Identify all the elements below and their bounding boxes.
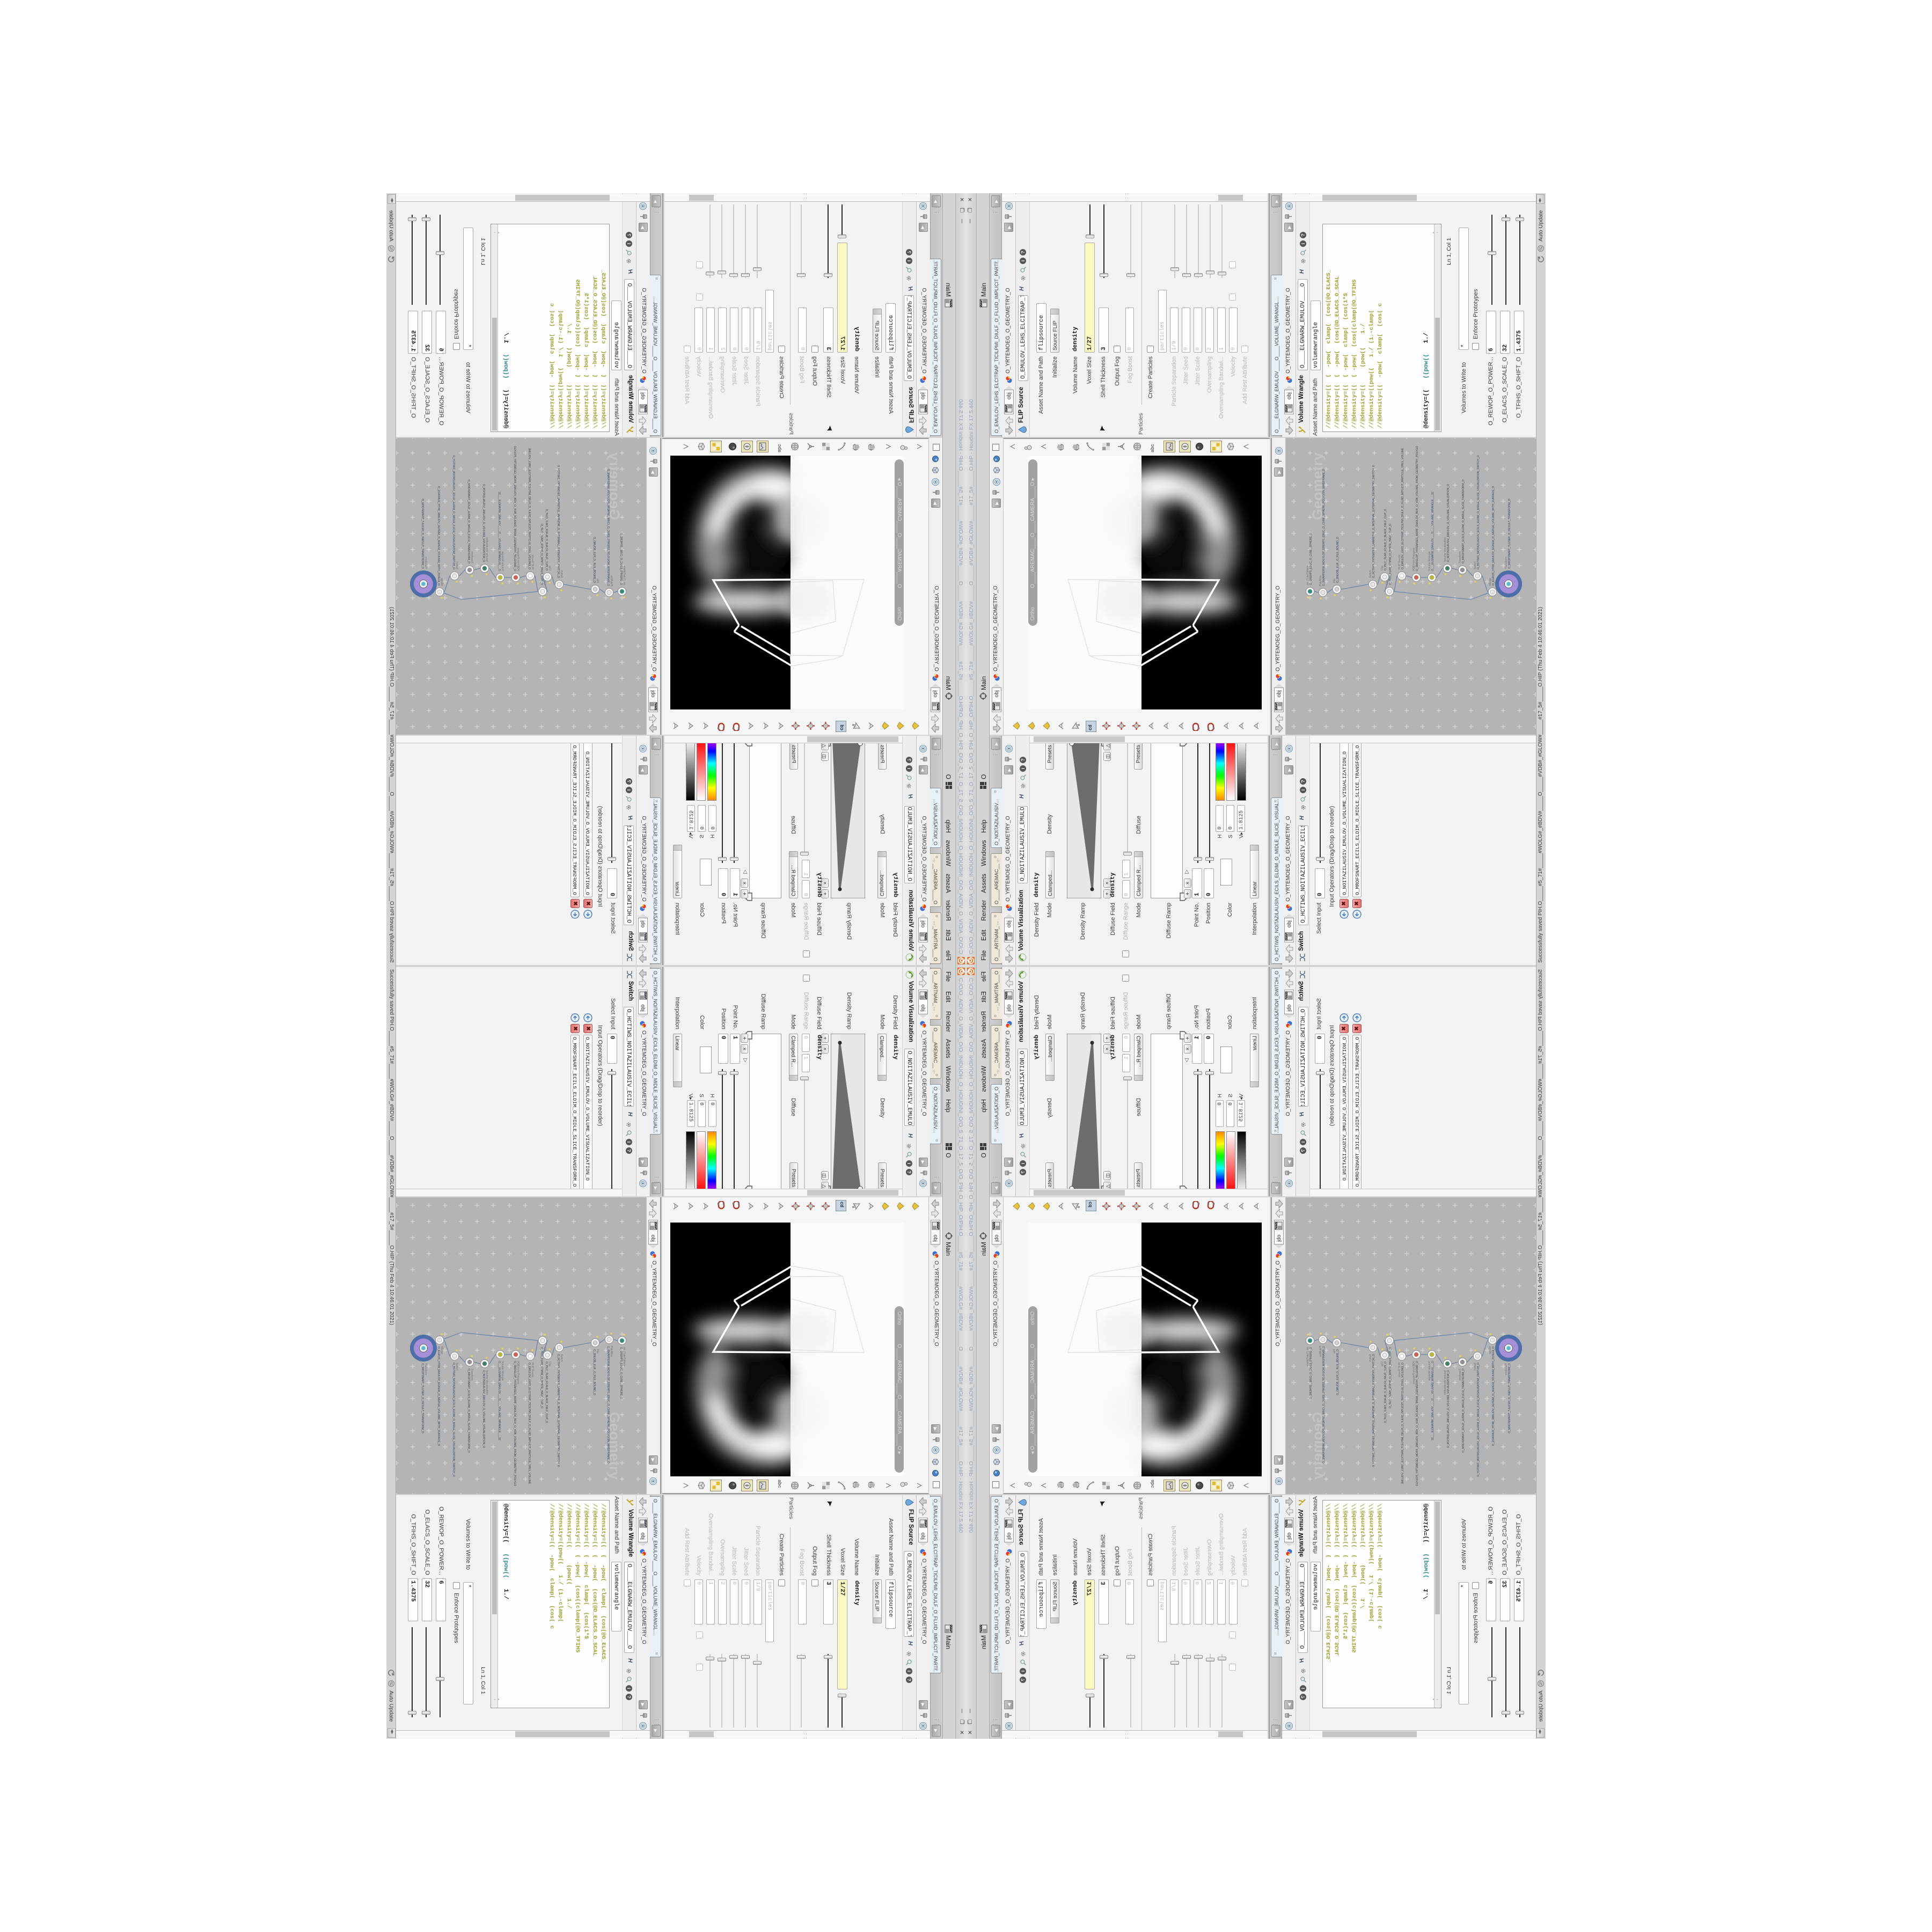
svg-text:Switch: Switch	[455, 1363, 458, 1371]
svg-text:O_EMARFERIW_NOGYLOP_EREHPS_EBU: O_EMARFERIW_NOGYLOP_EREHPS_EBUC_O_CUBE_S…	[606, 469, 610, 586]
svg-text:Merge: Merge	[440, 578, 443, 586]
svg-text:Transform: Transform	[470, 551, 473, 563]
svg-text:O_PILC_FLAH_KCALB_O_BLACK_HALF: O_PILC_FLAH_KCALB_O_BLACK_HALF_CLIP_O	[1384, 1362, 1387, 1423]
svg-text:O_EMULOV_LEHS_ELCITRAP_TICILPM: O_EMULOV_LEHS_ELCITRAP_TICILPMI_DIULF_O_…	[1401, 1363, 1404, 1484]
svg-text:Volume Wrangle: Volume Wrangle	[501, 551, 504, 571]
svg-text:O_DNUOB_ELIF_O_FILE_BOUND_O: O_DNUOB_ELIF_O_FILE_BOUND_O	[1336, 1349, 1340, 1395]
svg-text:VDB from Polygons: VDB from Polygons	[516, 547, 519, 571]
svg-text:PolyWire: PolyWire	[610, 575, 613, 586]
svg-text:O_HCTIWS_YRTEMOEG_LANRETXE_O_I: O_HCTIWS_YRTEMOEG_LANRETXE_O_INTERNAL_EX…	[557, 1354, 560, 1467]
svg-text:Transform: Transform	[424, 557, 427, 569]
svg-text:O_PILC_FLAH_ETIHW_O_WHITE_HALF: O_PILC_FLAH_ETIHW_O_WHITE_HALF_CLIP_O	[1389, 1347, 1392, 1408]
svg-text:Merge: Merge	[440, 1346, 443, 1354]
svg-text:O_EMULOV_LEHS_ELCITRAP_TICILPM: O_EMULOV_LEHS_ELCITRAP_TICILPMI_DIULF_O_…	[528, 448, 531, 569]
svg-text:O_HCTIWS_NOITAZILAUSIV_ECILS_E: O_HCTIWS_NOITAZILAUSIV_ECILS_ELDIM_O_MID…	[1477, 1363, 1480, 1477]
svg-text:O_MROFSNART_TLUSER_O_RESULT_TR: O_MROFSNART_TLUSER_O_RESULT_TRANSFORM_O	[421, 1363, 424, 1433]
svg-text:O_SNOGLOP_YRTEMOEG_MORF_EMULOV: O_SNOGLOP_YRTEMOEG_MORF_EMULOV_BDV_O_VDB…	[513, 1361, 516, 1486]
svg-text:an_CubeSphere: an_CubeSphere	[623, 565, 626, 585]
svg-text:Clip: Clip	[548, 566, 551, 570]
svg-text:O_NOITAZILAUSIV_EMULOV_O_VOLUM: O_NOITAZILAUSIV_EMULOV_O_VOLUME_VISUALIZ…	[482, 484, 485, 562]
svg-text:O_SNOGLOP_YRTEMOEG_MORF_EMULOV: O_SNOGLOP_YRTEMOEG_MORF_EMULOV_BDV_O_VDB…	[1416, 446, 1419, 571]
svg-text:O_EREHPS_EBUC_O_CUBE_SPHERE_O: O_EREHPS_EBUC_O_CUBE_SPHERE_O	[619, 1347, 623, 1399]
svg-text:Clip: Clip	[543, 580, 546, 585]
svg-text:FLIP Source: FLIP Source	[531, 554, 534, 569]
svg-text:O___ELGNARW_EMULOV___O____VOLU: O___ELGNARW_EMULOV___O____VOLUME_WRANGLE…	[497, 492, 501, 571]
svg-text:O_EMULOV_LEHS_ELCITRAP_TICILPM: O_EMULOV_LEHS_ELCITRAP_TICILPMI_DIULF_O_…	[528, 1363, 531, 1484]
svg-text:Clip: Clip	[548, 1362, 551, 1366]
svg-text:O_EGRUS_HTIW_EMULOV_EGREM_O_ME: O_EGRUS_HTIW_EMULOV_EGREM_O_MERGE_VOLUME…	[1492, 486, 1495, 586]
svg-text:O_DNUOB_ELIF_O_FILE_BOUND_O: O_DNUOB_ELIF_O_FILE_BOUND_O	[1336, 537, 1340, 583]
svg-text:O_HCTIWS_YRTEMOEG_LANRETXE_O_I: O_HCTIWS_YRTEMOEG_LANRETXE_O_INTERNAL_EX…	[557, 465, 560, 578]
svg-text:File: File	[596, 579, 599, 583]
svg-text:O_EREHPS_EBUC_O_CUBE_SPHERE_O: O_EREHPS_EBUC_O_CUBE_SPHERE_O	[619, 533, 623, 585]
svg-text:O_EGRUS_HTIW_EMULOV_EGREM_O_ME: O_EGRUS_HTIW_EMULOV_EGREM_O_MERGE_VOLUME…	[1492, 1346, 1495, 1446]
svg-text:O_EREHPS_EBUC_O_CUBE_SPHERE_O: O_EREHPS_EBUC_O_CUBE_SPHERE_O	[1309, 1347, 1313, 1399]
svg-text:O_EMULOV_LEHS_ELCITRAP_TICILPM: O_EMULOV_LEHS_ELCITRAP_TICILPMI_DIULF_O_…	[1401, 448, 1404, 569]
svg-text:O_HCTIWS_YRTEMOEG_LANRETXE_O_I: O_HCTIWS_YRTEMOEG_LANRETXE_O_INTERNAL_EX…	[1372, 1354, 1375, 1467]
svg-text:O_MROFSNART_ECILS_ELDIM_O_MIDL: O_MROFSNART_ECILS_ELDIM_O_MIDLE_SLICE_TR…	[1462, 1368, 1465, 1453]
svg-text:O_EREHPS_EBUC_O_CUBE_SPHERE_O: O_EREHPS_EBUC_O_CUBE_SPHERE_O	[1309, 533, 1313, 585]
svg-text:O_SNOGLOP_YRTEMOEG_MORF_EMULOV: O_SNOGLOP_YRTEMOEG_MORF_EMULOV_BDV_O_VDB…	[1416, 1361, 1419, 1486]
svg-text:Switch: Switch	[560, 570, 563, 578]
svg-text:Volume Visualization: Volume Visualization	[485, 1370, 488, 1395]
svg-text:O_MROFSNART_TLUSER_O_RESULT_TR: O_MROFSNART_TLUSER_O_RESULT_TRANSFORM_O	[1508, 499, 1511, 569]
svg-text:O_DNUOB_ELIF_O_FILE_BOUND_O: O_DNUOB_ELIF_O_FILE_BOUND_O	[592, 1349, 596, 1395]
svg-text:O___ELGNARW_EMULOV___O____VOLU: O___ELGNARW_EMULOV___O____VOLUME_WRANGLE…	[497, 1361, 501, 1440]
svg-text:File: File	[596, 1349, 599, 1353]
svg-text:FLIP Source: FLIP Source	[531, 1363, 534, 1378]
svg-text:O_NOITAZILAUSIV_EMULOV_O_VOLUM: O_NOITAZILAUSIV_EMULOV_O_VOLUME_VISUALIZ…	[1447, 1370, 1450, 1448]
svg-text:Transform: Transform	[470, 1368, 473, 1381]
svg-text:O_HCTIWS_NOITAZILAUSIV_ECILS_E: O_HCTIWS_NOITAZILAUSIV_ECILS_ELDIM_O_MID…	[452, 1363, 455, 1477]
svg-text:Switch: Switch	[560, 1354, 563, 1362]
svg-text:O_NOITAZILAUSIV_EMULOV_O_VOLUM: O_NOITAZILAUSIV_EMULOV_O_VOLUME_VISUALIZ…	[482, 1370, 485, 1448]
svg-text:O_PILC_FLAH_ETIHW_O_WHITE_HALF: O_PILC_FLAH_ETIHW_O_WHITE_HALF_CLIP_O	[1389, 524, 1392, 585]
svg-text:O_DNUOB_ELIF_O_FILE_BOUND_O: O_DNUOB_ELIF_O_FILE_BOUND_O	[592, 537, 596, 583]
svg-text:O_EMARFERIW_NOGYLOP_EREHPS_EBU: O_EMARFERIW_NOGYLOP_EREHPS_EBUC_O_CUBE_S…	[1322, 469, 1326, 586]
svg-text:O_MROFSNART_ECILS_ELDIM_O_MIDL: O_MROFSNART_ECILS_ELDIM_O_MIDLE_SLICE_TR…	[1462, 479, 1465, 563]
svg-text:O_PILC_FLAH_ETIHW_O_WHITE_HALF: O_PILC_FLAH_ETIHW_O_WHITE_HALF_CLIP_O	[540, 524, 543, 585]
svg-text:O_MROFSNART_ECILS_ELDIM_O_MIDL: O_MROFSNART_ECILS_ELDIM_O_MIDLE_SLICE_TR…	[467, 1368, 470, 1453]
svg-text:O_EGRUS_HTIW_EMULOV_EGREM_O_ME: O_EGRUS_HTIW_EMULOV_EGREM_O_MERGE_VOLUME…	[437, 1346, 440, 1446]
svg-text:O_NOITAZILAUSIV_EMULOV_O_VOLUM: O_NOITAZILAUSIV_EMULOV_O_VOLUME_VISUALIZ…	[1447, 484, 1450, 562]
svg-text:O_MROFSNART_ECILS_ELDIM_O_MIDL: O_MROFSNART_ECILS_ELDIM_O_MIDLE_SLICE_TR…	[467, 479, 470, 563]
svg-text:Transform: Transform	[424, 1363, 427, 1375]
svg-text:O_EMARFERIW_NOGYLOP_EREHPS_EBU: O_EMARFERIW_NOGYLOP_EREHPS_EBUC_O_CUBE_S…	[606, 1346, 610, 1463]
svg-text:O_PILC_FLAH_KCALB_O_BLACK_HALF: O_PILC_FLAH_KCALB_O_BLACK_HALF_CLIP_O	[1384, 509, 1387, 570]
svg-text:O___ELGNARW_EMULOV___O____VOLU: O___ELGNARW_EMULOV___O____VOLUME_WRANGLE…	[1431, 492, 1435, 571]
svg-text:O_PILC_FLAH_KCALB_O_BLACK_HALF: O_PILC_FLAH_KCALB_O_BLACK_HALF_CLIP_O	[545, 1362, 548, 1423]
svg-text:an_CubeSphere: an_CubeSphere	[623, 1347, 626, 1367]
svg-text:O_MROFSNART_TLUSER_O_RESULT_TR: O_MROFSNART_TLUSER_O_RESULT_TRANSFORM_O	[421, 499, 424, 569]
svg-text:Volume Visualization: Volume Visualization	[485, 537, 488, 562]
svg-text:O_HCTIWS_YRTEMOEG_LANRETXE_O_I: O_HCTIWS_YRTEMOEG_LANRETXE_O_INTERNAL_EX…	[1372, 465, 1375, 578]
svg-text:Switch: Switch	[455, 561, 458, 569]
svg-text:O_HCTIWS_NOITAZILAUSIV_ECILS_E: O_HCTIWS_NOITAZILAUSIV_ECILS_ELDIM_O_MID…	[452, 455, 455, 569]
svg-text:VDB from Polygons: VDB from Polygons	[516, 1361, 519, 1385]
svg-text:O_PILC_FLAH_KCALB_O_BLACK_HALF: O_PILC_FLAH_KCALB_O_BLACK_HALF_CLIP_O	[545, 509, 548, 570]
svg-text:O_PILC_FLAH_ETIHW_O_WHITE_HALF: O_PILC_FLAH_ETIHW_O_WHITE_HALF_CLIP_O	[540, 1347, 543, 1408]
svg-text:PolyWire: PolyWire	[610, 1346, 613, 1357]
svg-text:Clip: Clip	[543, 1347, 546, 1352]
svg-text:O_EMARFERIW_NOGYLOP_EREHPS_EBU: O_EMARFERIW_NOGYLOP_EREHPS_EBUC_O_CUBE_S…	[1322, 1346, 1326, 1463]
svg-text:Volume Wrangle: Volume Wrangle	[501, 1361, 504, 1381]
svg-text:O_HCTIWS_NOITAZILAUSIV_ECILS_E: O_HCTIWS_NOITAZILAUSIV_ECILS_ELDIM_O_MID…	[1477, 455, 1480, 569]
svg-text:O_SNOGLOP_YRTEMOEG_MORF_EMULOV: O_SNOGLOP_YRTEMOEG_MORF_EMULOV_BDV_O_VDB…	[513, 446, 516, 571]
svg-text:O___ELGNARW_EMULOV___O____VOLU: O___ELGNARW_EMULOV___O____VOLUME_WRANGLE…	[1431, 1361, 1435, 1440]
svg-text:O_EGRUS_HTIW_EMULOV_EGREM_O_ME: O_EGRUS_HTIW_EMULOV_EGREM_O_MERGE_VOLUME…	[437, 486, 440, 586]
svg-text:O_MROFSNART_TLUSER_O_RESULT_TR: O_MROFSNART_TLUSER_O_RESULT_TRANSFORM_O	[1508, 1363, 1511, 1433]
